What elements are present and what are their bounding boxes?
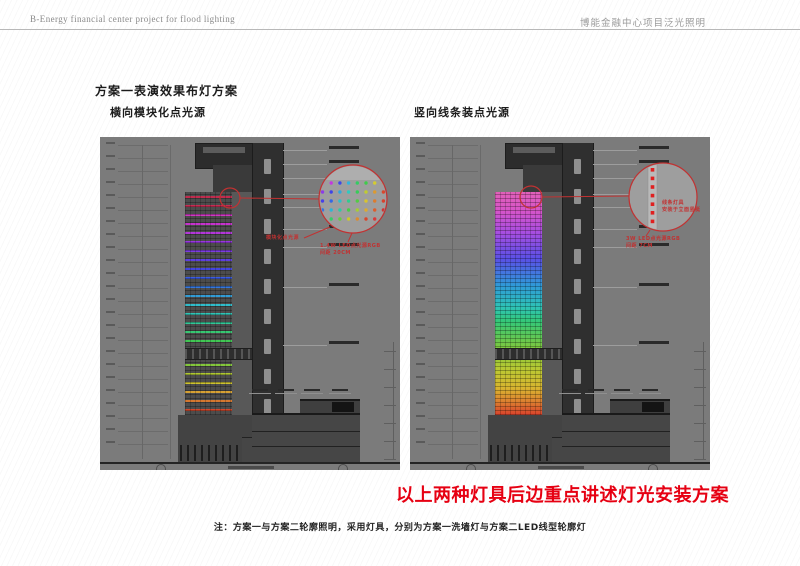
grid-bubble <box>648 464 658 470</box>
statement-text: 以上两种灯具后边重点讲述灯光安装方案 <box>396 481 729 507</box>
leader-label-text <box>329 225 359 228</box>
detail-caption-line1: 1.4W LED点光源RGB <box>320 243 381 250</box>
floor-elevation-text <box>106 415 115 417</box>
annex-rooftop-unit <box>332 402 354 412</box>
floor-line <box>428 392 478 393</box>
led-dot <box>373 217 376 220</box>
mullion-strip <box>232 192 252 415</box>
window-slot <box>264 399 271 414</box>
leader-label-text <box>329 160 359 163</box>
detail-top-band <box>319 165 387 180</box>
header-right-title: 博能金融中心项目泛光照明 <box>580 15 706 29</box>
window-slot <box>574 309 581 324</box>
floor-elevation-text <box>416 389 425 391</box>
floor-elevation-text <box>106 350 115 352</box>
floor-line <box>428 366 478 367</box>
floor-line <box>428 340 478 341</box>
floor-line <box>428 262 478 263</box>
floor-line <box>118 366 168 367</box>
crown-cap <box>513 147 555 153</box>
drawing-caption-marks <box>228 466 274 469</box>
floor-elevation-text <box>416 272 425 274</box>
led-dot <box>373 181 376 184</box>
floor-line <box>118 392 168 393</box>
axis-label-text <box>614 389 630 391</box>
floor-elevation-text <box>416 311 425 313</box>
led-dot <box>382 181 385 184</box>
axis-label-text <box>304 389 320 391</box>
led-dot <box>338 208 341 211</box>
axis-label-text <box>642 389 658 391</box>
curtainwall-grid <box>185 192 232 415</box>
elevation-panel-left: 模块化点光源 1.4W LED点光源RGB 间距 20CM <box>100 137 400 470</box>
annex-floor-line <box>252 446 360 447</box>
floor-line <box>118 197 168 198</box>
leader-label-text <box>639 225 669 228</box>
led-dot <box>330 181 333 184</box>
leader-line-gray <box>283 164 327 165</box>
floor-line <box>118 418 168 419</box>
axis-label-text <box>332 389 348 391</box>
floor-elevation-text <box>106 311 115 313</box>
led-dot <box>338 181 341 184</box>
floor-line <box>428 288 478 289</box>
floor-line <box>428 353 478 354</box>
floor-line <box>428 171 478 172</box>
axis-label-underline <box>611 393 633 394</box>
detail-caption: 1.4W LED点光源RGB 间距 20CM <box>320 243 381 257</box>
led-dot <box>364 217 367 220</box>
floor-elevation-text <box>416 337 425 339</box>
floor-line <box>118 236 168 237</box>
floor-line <box>118 288 168 289</box>
detail-caption: 3W LED点光源RGB 间距 7CM <box>626 236 680 250</box>
floor-line <box>428 197 478 198</box>
header-rule <box>0 29 800 30</box>
strip-led-dot <box>651 185 655 189</box>
window-slot <box>574 279 581 294</box>
dimension-stack <box>384 342 396 460</box>
floor-elevation-text <box>106 428 115 430</box>
floor-line <box>428 418 478 419</box>
note-text: 注：方案一与方案二轮廓照明，采用灯具，分别为方案一洗墙灯与方案二LED线型轮廓灯 <box>0 520 800 533</box>
leader-label-text <box>639 190 669 193</box>
led-dot <box>321 199 324 202</box>
led-dot <box>356 181 359 184</box>
axis-label-underline <box>329 393 351 394</box>
leader-line-gray <box>593 287 637 288</box>
floor-line <box>428 327 478 328</box>
floor-elevation-text <box>106 246 115 248</box>
dimension-axis-2 <box>170 145 171 459</box>
floor-elevation-text <box>106 181 115 183</box>
floor-elevation-text <box>416 207 425 209</box>
leader-label-text <box>639 160 669 163</box>
led-dot <box>382 190 385 193</box>
led-dot <box>373 190 376 193</box>
leader-label-text <box>329 174 359 177</box>
strip-led-dot <box>651 177 655 181</box>
floor-line <box>118 301 168 302</box>
annex-floor-line <box>562 431 670 432</box>
grid-bubble <box>156 464 166 470</box>
led-dot <box>364 190 367 193</box>
axis-label-underline <box>249 393 271 394</box>
leader-label-text <box>329 203 359 206</box>
led-dot <box>321 181 324 184</box>
grid-bubble <box>338 464 348 470</box>
window-slot <box>574 219 581 234</box>
floor-elevation-text <box>106 168 115 170</box>
floor-elevation-text <box>106 376 115 378</box>
floor-line <box>118 379 168 380</box>
elevation-panel-right: 线条灯具 安装于立面竖梃 3W LED点光源RGB 间距 7CM <box>410 137 710 470</box>
floor-line <box>118 210 168 211</box>
floor-line <box>428 184 478 185</box>
mullion-strip <box>542 192 562 415</box>
floor-elevation-text <box>416 155 425 157</box>
led-dot <box>364 208 367 211</box>
axis-label-underline <box>585 393 607 394</box>
floor-elevation-text <box>106 220 115 222</box>
annex-step <box>242 437 252 463</box>
window-slot <box>574 339 581 354</box>
leader-line-gray <box>283 229 327 230</box>
axis-label-underline <box>559 393 581 394</box>
floor-elevation-text <box>416 259 425 261</box>
led-dot <box>321 208 324 211</box>
led-dot <box>356 208 359 211</box>
floor-elevation-text <box>106 402 115 404</box>
floor-elevation-text <box>416 363 425 365</box>
floor-line <box>118 405 168 406</box>
floor-elevation-text <box>416 194 425 196</box>
leader-line-gray <box>283 150 327 151</box>
led-dot <box>347 181 350 184</box>
floor-elevation-text <box>106 155 115 157</box>
floor-line <box>118 340 168 341</box>
floor-line <box>428 210 478 211</box>
dimension-axis-2 <box>480 145 481 459</box>
dimension-axis <box>142 145 143 459</box>
strip-detail-label: 线条灯具 安装于立面竖梃 <box>662 200 701 214</box>
strip-led-dot <box>651 168 655 172</box>
floor-elevation-text <box>416 441 425 443</box>
led-dot <box>364 199 367 202</box>
floor-elevation-text <box>106 233 115 235</box>
floor-elevation-text <box>106 441 115 443</box>
floor-elevation-text <box>106 389 115 391</box>
leader-line-gray <box>593 207 637 208</box>
floor-elevation-text <box>106 324 115 326</box>
floor-elevation-text <box>106 207 115 209</box>
window-slot <box>264 339 271 354</box>
floor-line <box>118 184 168 185</box>
leader-line-gray <box>283 287 327 288</box>
floor-line <box>428 249 478 250</box>
led-dot <box>373 208 376 211</box>
header-left-title: B-Energy financial center project for fl… <box>30 14 235 24</box>
floor-elevation-text <box>416 402 425 404</box>
curtainwall-grid <box>495 192 542 415</box>
annex-step <box>552 437 562 463</box>
window-slot <box>264 189 271 204</box>
floor-line <box>118 145 168 146</box>
window-slot <box>574 399 581 414</box>
leader-line-gray <box>283 178 327 179</box>
window-slot <box>264 249 271 264</box>
floor-elevation-text <box>106 363 115 365</box>
floor-line <box>118 353 168 354</box>
ground-line <box>100 462 400 464</box>
ground-line <box>410 462 710 464</box>
floor-line <box>118 327 168 328</box>
floor-elevation-text <box>106 194 115 196</box>
leader-line-gray <box>593 345 637 346</box>
floor-line <box>118 314 168 315</box>
strip-led-dot <box>651 211 655 215</box>
floor-elevation-text <box>416 350 425 352</box>
leader-line-gray <box>593 194 637 195</box>
floor-elevation-text <box>416 246 425 248</box>
leader-label-text <box>639 341 669 344</box>
leader-label-text <box>329 146 359 149</box>
floor-line <box>118 262 168 263</box>
slide-page: B-Energy financial center project for fl… <box>0 0 800 566</box>
annex-rooftop-unit <box>642 402 664 412</box>
window-slot <box>574 249 581 264</box>
floor-elevation-text <box>416 376 425 378</box>
floor-line <box>118 158 168 159</box>
grid-bubble <box>466 464 476 470</box>
floor-elevation-text <box>416 168 425 170</box>
floor-level-markers <box>416 145 478 457</box>
led-dot-grid <box>321 181 385 220</box>
led-dot <box>373 199 376 202</box>
window-slot <box>264 159 271 174</box>
floor-elevation-text <box>106 285 115 287</box>
floor-elevation-text <box>416 233 425 235</box>
leader-line-gray <box>593 229 637 230</box>
leader-label-text <box>329 190 359 193</box>
dimension-axis <box>452 145 453 459</box>
strip-led-dot <box>651 194 655 198</box>
leader-line-gray <box>593 178 637 179</box>
floor-elevation-text <box>416 142 425 144</box>
led-dot <box>330 217 333 220</box>
leader-label-text <box>639 283 669 286</box>
floor-line <box>428 444 478 445</box>
floor-elevation-text <box>106 259 115 261</box>
led-dot <box>356 217 359 220</box>
detail-caption-line2: 间距 7CM <box>626 243 680 250</box>
window-slot <box>574 189 581 204</box>
leader-label-text <box>329 283 359 286</box>
floor-elevation-text <box>106 142 115 144</box>
leader-line <box>348 233 352 242</box>
led-dot <box>321 217 324 220</box>
leader-label-text <box>639 146 669 149</box>
floor-line <box>428 236 478 237</box>
leader-line-gray <box>283 345 327 346</box>
axis-label-text <box>278 389 294 391</box>
axis-label-underline <box>275 393 297 394</box>
axis-label-text <box>588 389 604 391</box>
led-dot <box>347 217 350 220</box>
floor-line <box>428 405 478 406</box>
floor-line <box>428 145 478 146</box>
axis-label-underline <box>639 393 661 394</box>
floor-line <box>428 431 478 432</box>
annex-body <box>562 413 670 464</box>
window-slot <box>574 369 581 384</box>
floor-elevation-text <box>416 415 425 417</box>
axis-label-text <box>562 389 578 391</box>
floor-line <box>118 249 168 250</box>
led-dot <box>330 208 333 211</box>
left-subtitle: 横向模块化点光源 <box>110 104 206 120</box>
leader-line-gray <box>283 207 327 208</box>
modular-light-label: 模块化点光源 <box>266 235 299 242</box>
crown-cap <box>203 147 245 153</box>
floor-line <box>118 431 168 432</box>
window-slot <box>264 279 271 294</box>
led-dot <box>382 199 385 202</box>
tower-facade <box>495 192 542 415</box>
floor-level-markers <box>106 145 168 457</box>
led-dot <box>338 217 341 220</box>
window-slot <box>574 159 581 174</box>
leader-label-text <box>639 174 669 177</box>
tower-facade <box>185 192 232 415</box>
floor-line <box>428 314 478 315</box>
floor-line <box>428 275 478 276</box>
leader-line-gray <box>283 194 327 195</box>
floor-line <box>428 301 478 302</box>
floor-line <box>118 444 168 445</box>
floor-line <box>118 275 168 276</box>
floor-elevation-text <box>416 285 425 287</box>
floor-line <box>118 223 168 224</box>
strip-label-line2: 安装于立面竖梃 <box>662 207 701 214</box>
dimension-stack <box>694 342 706 460</box>
drawing-caption-marks <box>538 466 584 469</box>
floor-elevation-text <box>416 298 425 300</box>
floor-elevation-text <box>416 181 425 183</box>
detail-caption-line2: 间距 20CM <box>320 250 381 257</box>
floor-elevation-text <box>106 298 115 300</box>
window-slot <box>264 309 271 324</box>
strip-led-dot <box>651 220 655 224</box>
led-dot <box>364 181 367 184</box>
axis-label-underline <box>301 393 323 394</box>
floor-line <box>428 158 478 159</box>
leader-line-gray <box>593 150 637 151</box>
floor-elevation-text <box>416 324 425 326</box>
right-subtitle: 竖向线条装点光源 <box>414 104 510 120</box>
floor-line <box>428 379 478 380</box>
annex-floor-line <box>252 431 360 432</box>
floor-elevation-text <box>416 428 425 430</box>
detail-caption-line1: 3W LED点光源RGB <box>626 236 680 243</box>
slide-title: 方案一表演效果布灯方案 <box>95 82 238 99</box>
annex-floor-line <box>562 446 670 447</box>
led-dot <box>382 217 385 220</box>
annex-body <box>252 413 360 464</box>
floor-line <box>428 223 478 224</box>
leader-line-gray <box>593 164 637 165</box>
led-dot <box>347 208 350 211</box>
strip-label-line1: 线条灯具 <box>662 200 701 207</box>
floor-elevation-text <box>106 337 115 339</box>
window-slot <box>264 369 271 384</box>
axis-label-text <box>252 389 268 391</box>
floor-elevation-text <box>416 220 425 222</box>
leader-label-text <box>329 341 359 344</box>
floor-elevation-text <box>106 272 115 274</box>
window-slot <box>264 219 271 234</box>
led-dot <box>382 208 385 211</box>
floor-line <box>118 171 168 172</box>
